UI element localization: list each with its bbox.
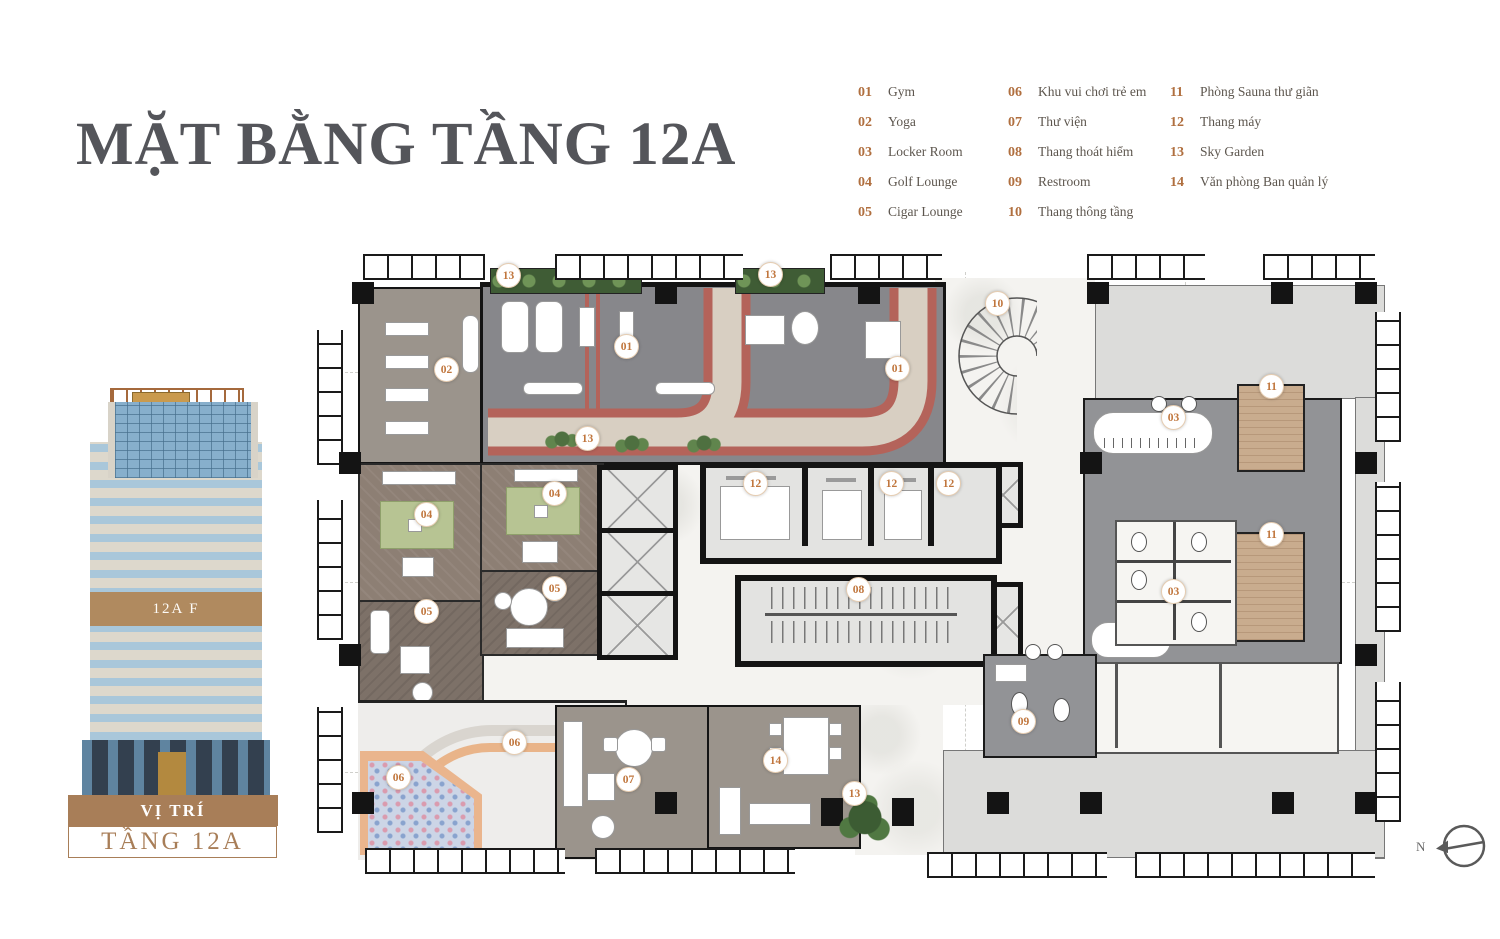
- legend-item-label: Thang thoát hiểm: [1038, 144, 1133, 160]
- window-band: [1375, 482, 1401, 632]
- column: [1087, 282, 1109, 304]
- counter: [382, 471, 456, 485]
- chair: [603, 737, 618, 752]
- legend-item: 07Thư viện: [1008, 114, 1146, 144]
- room-number-badge: 10: [985, 291, 1010, 316]
- building-body: [90, 442, 262, 740]
- room-golf-lounge: [358, 463, 484, 604]
- desk: [522, 541, 558, 563]
- room-number-badge: 12: [743, 471, 768, 496]
- room-number-badge: 05: [414, 599, 439, 624]
- terrace-north: [1095, 285, 1385, 399]
- room-number-badge: 13: [496, 263, 521, 288]
- room-number-badge: 04: [542, 481, 567, 506]
- room-number-badge: 03: [1161, 579, 1186, 604]
- terrace-south: [943, 750, 1385, 858]
- legend-item-number: 01: [858, 85, 888, 101]
- wash-basin: [1025, 644, 1041, 660]
- window-band: [1263, 254, 1375, 280]
- building-entrance: [158, 752, 186, 796]
- plant: [545, 424, 579, 454]
- legend-item-label: Restroom: [1038, 174, 1091, 190]
- room-number-badge: 14: [763, 748, 788, 773]
- weight-rack: [865, 321, 901, 359]
- yoga-mat: [385, 355, 429, 369]
- legend-item-label: Golf Lounge: [888, 174, 957, 190]
- legend-item-number: 14: [1170, 175, 1200, 191]
- room-number-badge: 11: [1259, 374, 1284, 399]
- room-number-badge: 01: [614, 334, 639, 359]
- locker-bank: [1093, 412, 1213, 454]
- bookshelf: [563, 721, 583, 807]
- room-number-badge: 02: [434, 357, 459, 382]
- column: [339, 644, 361, 666]
- legend-item-label: Thư viện: [1038, 114, 1087, 130]
- room-number-badge: 13: [842, 781, 867, 806]
- legend-item-number: 05: [858, 205, 888, 221]
- legend-item: 01Gym: [858, 84, 963, 114]
- svg-text:N: N: [1416, 839, 1426, 854]
- chair: [769, 723, 782, 736]
- legend-item-number: 12: [1170, 115, 1200, 131]
- legend-item-number: 10: [1008, 205, 1038, 221]
- service-shaft: [597, 591, 678, 660]
- column: [1355, 644, 1377, 666]
- counter: [514, 469, 578, 482]
- window-band: [1375, 312, 1401, 442]
- chair: [829, 723, 842, 736]
- location-floor: TẦNG 12A: [68, 826, 277, 858]
- chair: [651, 737, 666, 752]
- legend-column: 06Khu vui chơi trẻ em07Thư viện08Thang t…: [1008, 84, 1146, 234]
- legend-item: 10Thang thông tầng: [1008, 204, 1146, 234]
- window-band: [317, 500, 343, 640]
- column: [987, 792, 1009, 814]
- toilet: [1131, 532, 1147, 552]
- legend-item-label: Cigar Lounge: [888, 204, 963, 220]
- window-band: [927, 852, 1107, 878]
- legend-item-label: Thang máy: [1200, 114, 1261, 130]
- elevator-wall: [928, 468, 934, 546]
- window-band: [830, 254, 942, 280]
- building-glass-top: [108, 402, 258, 478]
- legend-item-label: Gym: [888, 84, 915, 100]
- vanity: [995, 664, 1027, 682]
- chaise: [370, 610, 390, 654]
- column: [352, 282, 374, 304]
- room-number-badge: 12: [936, 471, 961, 496]
- gym-equipment: [791, 311, 819, 345]
- room-number-badge: 07: [616, 767, 641, 792]
- room-number-badge: 08: [846, 577, 871, 602]
- spiral-stair: [945, 278, 1095, 458]
- window-band: [595, 848, 795, 874]
- legend-item: 09Restroom: [1008, 174, 1146, 204]
- column: [655, 792, 677, 814]
- window-band: [1135, 852, 1375, 878]
- legend-item: 11Phòng Sauna thư giãn: [1170, 84, 1328, 114]
- elevator-wall: [868, 468, 874, 546]
- room-yoga: [358, 287, 484, 464]
- elevator-car: [884, 490, 922, 540]
- gym-machine: [579, 307, 595, 347]
- room-wall: [1115, 664, 1118, 748]
- page-title: MẶT BẰNG TẦNG 12A: [76, 110, 736, 180]
- legend-item-label: Văn phòng Ban quản lý: [1200, 174, 1328, 190]
- legend-column: 11Phòng Sauna thư giãn12Thang máy13Sky G…: [1170, 84, 1328, 204]
- yoga-mat: [385, 421, 429, 435]
- room-wall: [1219, 664, 1222, 748]
- yoga-mat: [385, 322, 429, 336]
- legend-item: 14Văn phòng Ban quản lý: [1170, 174, 1328, 204]
- stair-rail: [765, 613, 957, 616]
- stall-wall: [1117, 560, 1231, 563]
- service-shaft: [597, 465, 678, 533]
- window-band: [1087, 254, 1205, 280]
- gym-sign: [523, 382, 583, 395]
- column: [1080, 792, 1102, 814]
- legend-item: 02Yoga: [858, 114, 963, 144]
- building-floor-band: 12A F: [90, 592, 262, 626]
- treadmill: [535, 301, 563, 353]
- service-shaft: [597, 528, 678, 596]
- locker-slots: [1104, 438, 1200, 448]
- legend-item-number: 03: [858, 145, 888, 161]
- legend-item: 03Locker Room: [858, 144, 963, 174]
- legend-item-label: Phòng Sauna thư giãn: [1200, 84, 1319, 100]
- room-number-badge: 01: [885, 356, 910, 381]
- golf-tee: [534, 505, 548, 518]
- column: [655, 282, 677, 304]
- legend-item-label: Thang thông tầng: [1038, 204, 1133, 220]
- column: [858, 282, 880, 304]
- room-number-badge: 06: [502, 730, 527, 755]
- chair: [829, 747, 842, 760]
- stair-treads: [771, 621, 951, 643]
- column: [1271, 282, 1293, 304]
- toilet: [1053, 698, 1070, 722]
- elevator-car: [822, 490, 862, 540]
- toilet: [1191, 532, 1207, 552]
- window-band: [365, 848, 565, 874]
- window-band: [1375, 682, 1401, 822]
- north-compass: N: [1408, 818, 1494, 874]
- elevator-lintel: [826, 478, 856, 482]
- building-render: 12A F: [70, 388, 282, 796]
- desk: [402, 557, 434, 577]
- room-number-badge: 06: [386, 765, 411, 790]
- legend-item: 04Golf Lounge: [858, 174, 963, 204]
- room-golf-lounge: [480, 463, 604, 574]
- legend-item-number: 04: [858, 175, 888, 191]
- room-number-badge: 11: [1259, 522, 1284, 547]
- toilet: [1191, 612, 1207, 632]
- locker-block: [1083, 398, 1342, 664]
- column: [1355, 792, 1377, 814]
- legend-item: 06Khu vui chơi trẻ em: [1008, 84, 1146, 114]
- yoga-mat: [385, 388, 429, 402]
- pouf: [400, 646, 430, 674]
- meeting-table: [783, 717, 829, 775]
- armchair: [587, 773, 615, 801]
- legend-item: 08Thang thoát hiểm: [1008, 144, 1146, 174]
- room-number-badge: 12: [879, 471, 904, 496]
- legend-item-label: Khu vui chơi trẻ em: [1038, 84, 1146, 100]
- window-band: [317, 707, 343, 833]
- legend-item-number: 11: [1170, 85, 1200, 101]
- armchair: [591, 815, 615, 839]
- desk: [749, 803, 811, 825]
- column: [339, 452, 361, 474]
- chair: [494, 592, 512, 610]
- legend-item-number: 13: [1170, 145, 1200, 161]
- console: [506, 628, 564, 648]
- room-number-badge: 09: [1011, 709, 1036, 734]
- column: [1355, 282, 1377, 304]
- room-sauna: [1233, 532, 1305, 642]
- legend-item-label: Locker Room: [888, 144, 963, 160]
- cabinet: [719, 787, 741, 835]
- plant: [687, 428, 721, 458]
- window-band: [363, 254, 485, 280]
- wash-basin: [1047, 644, 1063, 660]
- legend-column: 01Gym02Yoga03Locker Room04Golf Lounge05C…: [858, 84, 963, 234]
- legend-item: 12Thang máy: [1170, 114, 1328, 144]
- gym-sign: [655, 382, 715, 395]
- column: [352, 792, 374, 814]
- legend-item-number: 07: [1008, 115, 1038, 131]
- floorplan-page: { "title": "MẶT BẰNG TẦNG 12A", "locatio…: [0, 0, 1500, 939]
- legend-item-label: Sky Garden: [1200, 144, 1264, 160]
- legend-item-label: Yoga: [888, 114, 916, 130]
- plant: [615, 428, 649, 458]
- location-heading: VỊ TRÍ: [68, 795, 278, 826]
- legend-item-number: 02: [858, 115, 888, 131]
- legend-item: 05Cigar Lounge: [858, 204, 963, 234]
- column: [1080, 452, 1102, 474]
- column: [1355, 452, 1377, 474]
- room-number-badge: 04: [414, 502, 439, 527]
- bench: [462, 315, 479, 373]
- room-number-badge: 13: [758, 262, 783, 287]
- elevator-wall: [802, 468, 808, 546]
- room-number-badge: 03: [1161, 405, 1186, 430]
- toilet: [1131, 570, 1147, 590]
- column: [892, 798, 914, 826]
- room-number-badge: 13: [575, 426, 600, 451]
- legend-item-number: 06: [1008, 85, 1038, 101]
- legend-item: 13Sky Garden: [1170, 144, 1328, 174]
- reading-table: [615, 729, 653, 767]
- treadmill: [501, 301, 529, 353]
- legend-item-number: 09: [1008, 175, 1038, 191]
- window-band: [317, 330, 343, 465]
- window-band: [555, 254, 743, 280]
- legend-item-number: 08: [1008, 145, 1038, 161]
- room-restroom: [983, 654, 1097, 758]
- room-number-badge: 05: [542, 576, 567, 601]
- column: [1272, 792, 1294, 814]
- gym-bench: [745, 315, 785, 345]
